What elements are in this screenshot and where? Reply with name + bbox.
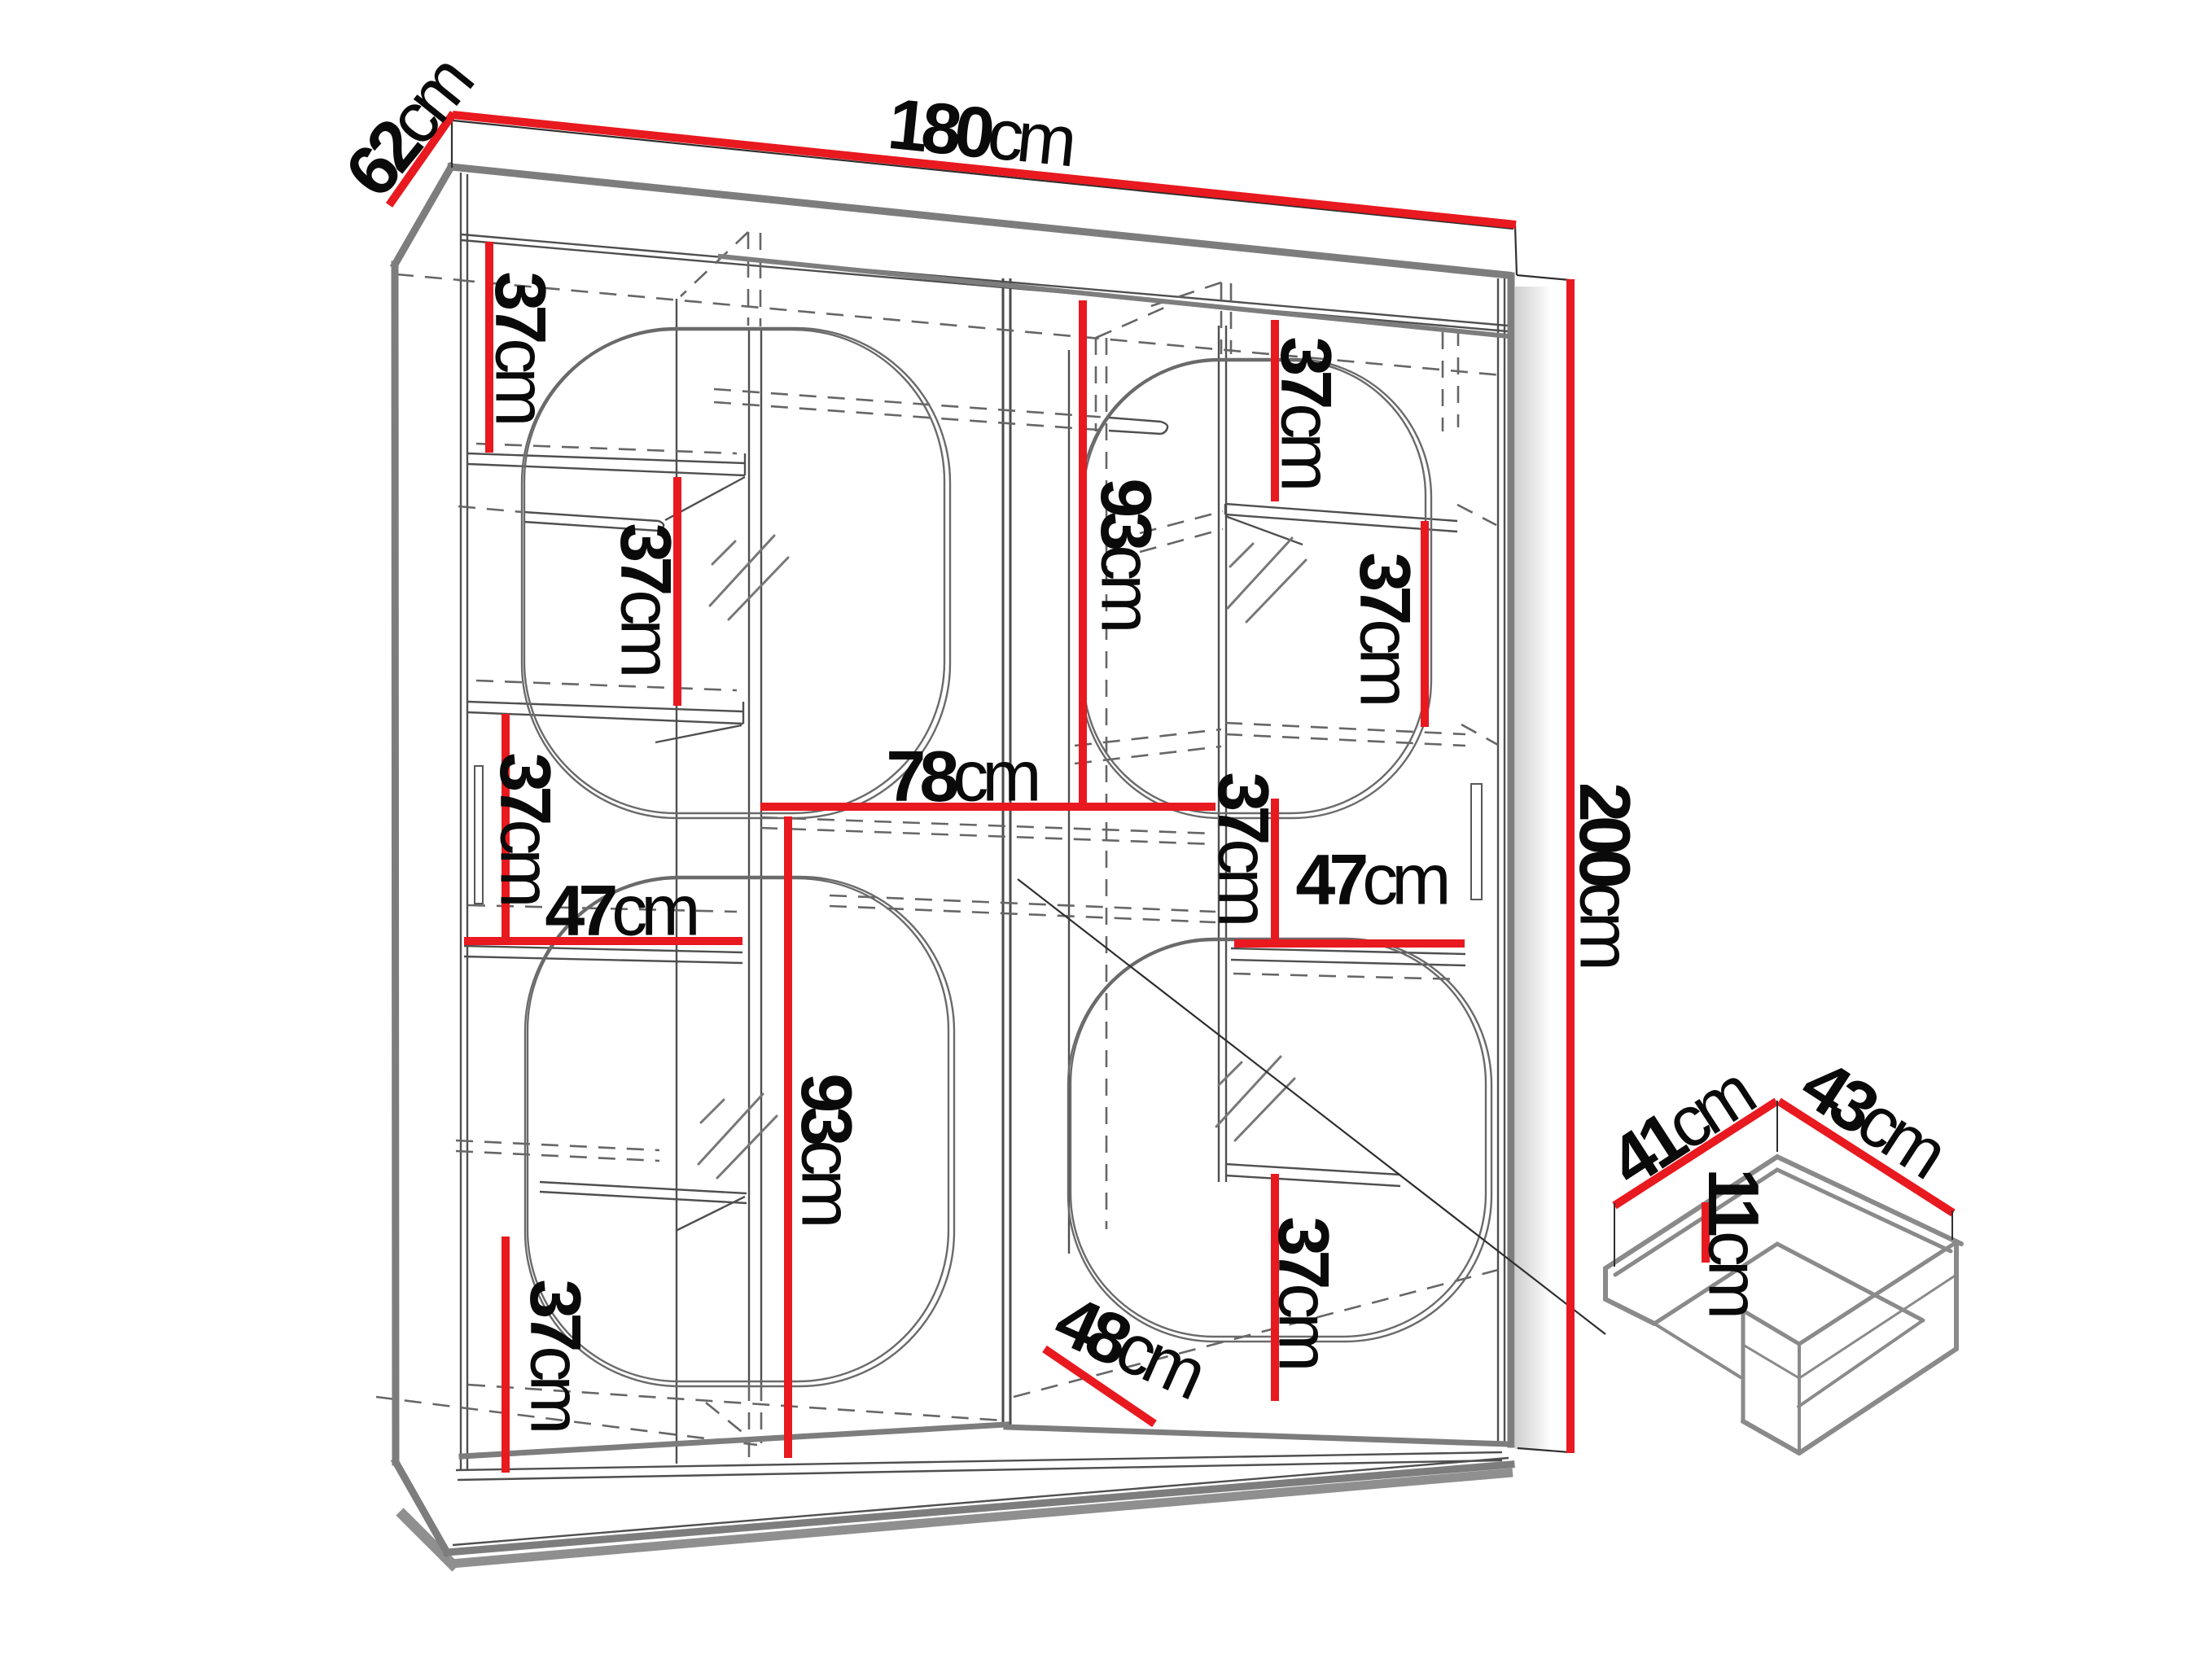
svg-text:37cm: 37cm: [1346, 552, 1426, 703]
svg-text:47cm: 47cm: [1295, 839, 1447, 920]
svg-text:11cm: 11cm: [1694, 1168, 1775, 1315]
svg-text:93cm: 93cm: [787, 1073, 868, 1224]
svg-text:78cm: 78cm: [886, 736, 1037, 816]
svg-text:37cm: 37cm: [516, 1279, 597, 1430]
svg-text:93cm: 93cm: [1087, 478, 1167, 629]
svg-text:37cm: 37cm: [1204, 772, 1285, 923]
svg-text:47cm: 47cm: [545, 870, 696, 951]
svg-text:37cm: 37cm: [1264, 1216, 1345, 1368]
svg-text:37cm: 37cm: [1267, 336, 1347, 488]
svg-text:37cm: 37cm: [481, 271, 562, 422]
svg-text:200cm: 200cm: [1566, 782, 1646, 967]
svg-text:37cm: 37cm: [607, 523, 687, 674]
